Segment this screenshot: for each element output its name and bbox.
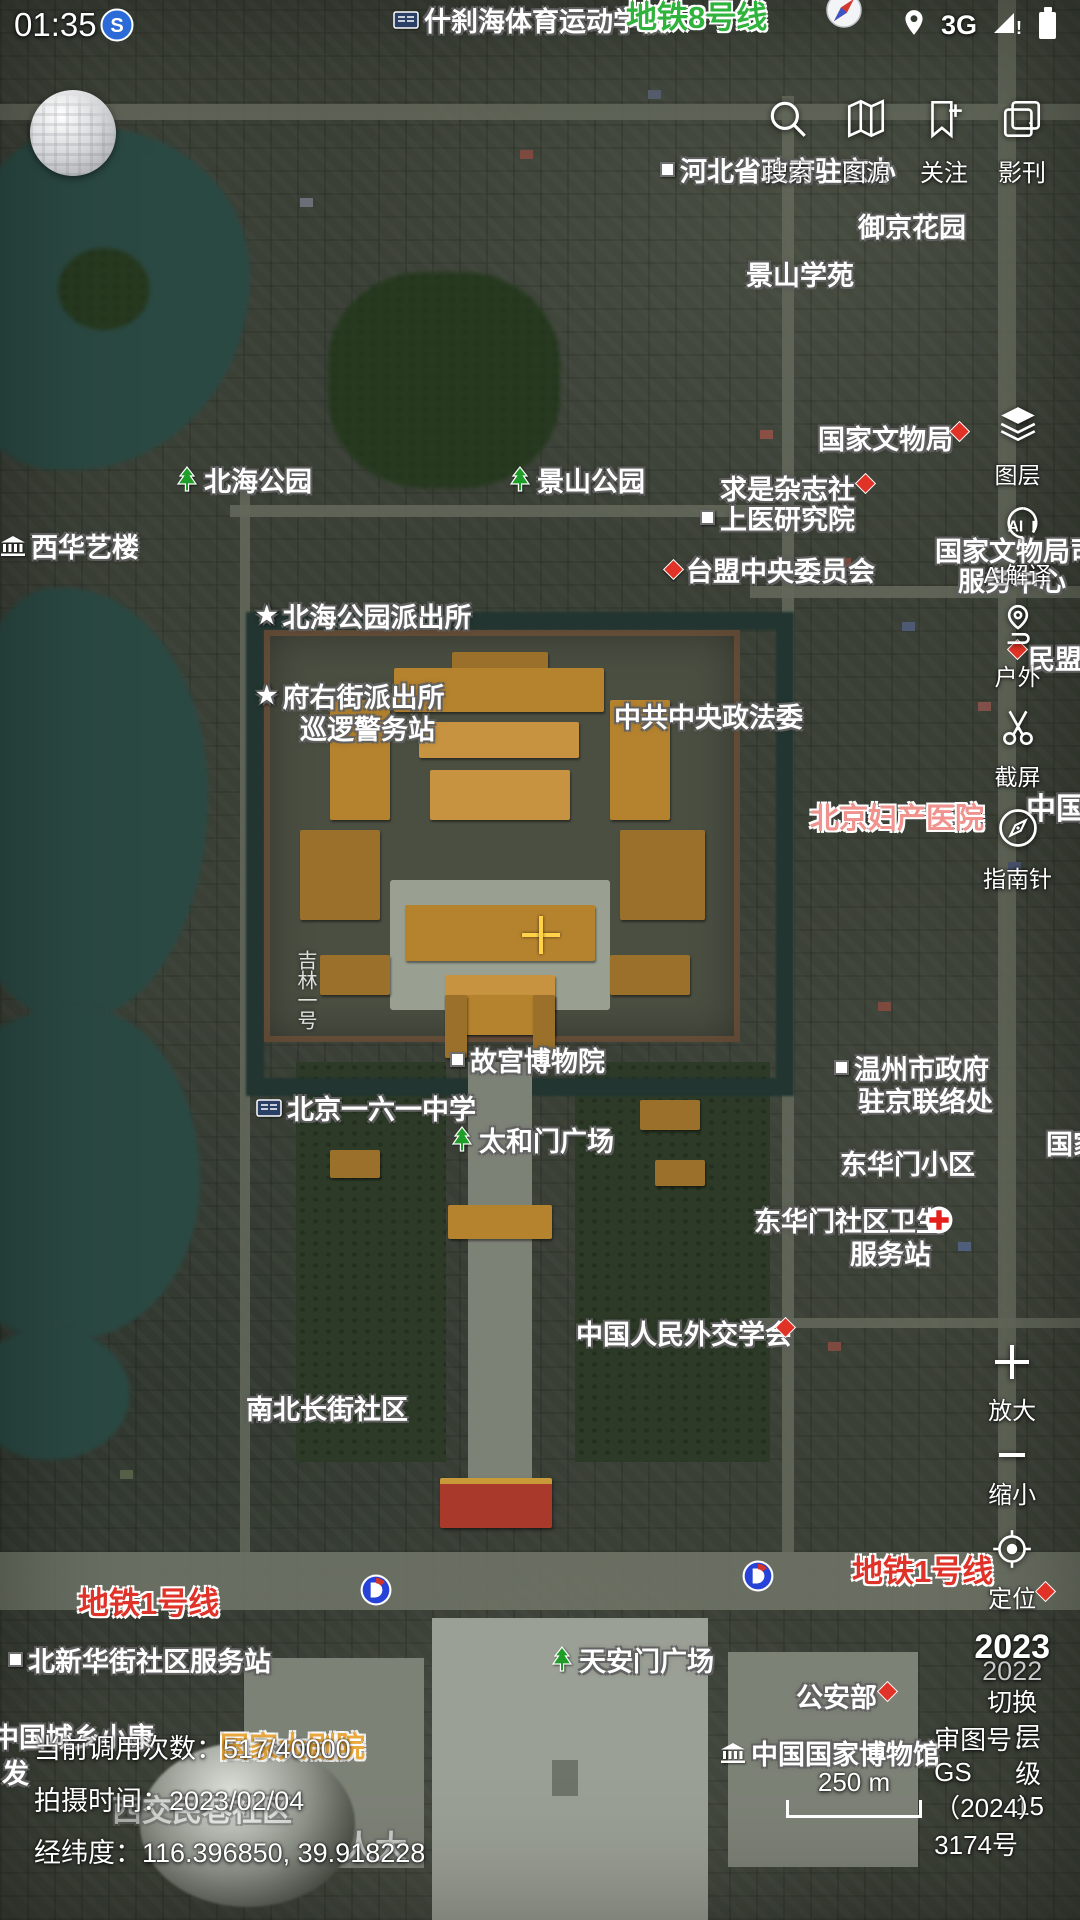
overlapping-frames-icon (999, 96, 1045, 147)
map-label: 吉林一号 (291, 950, 320, 1030)
map-canvas[interactable]: 什刹海体育运动学校地铁8号线河北省政府驻京办御京花园景山学苑国家文物局北海公园景… (0, 0, 1080, 1920)
layers-icon (994, 404, 1042, 453)
locate-button[interactable]: 定位 (988, 1526, 1036, 1614)
map-label[interactable]: 驻京联络处 (858, 1080, 993, 1119)
map-label[interactable]: 上医研究院 (700, 498, 855, 537)
museum-icon (720, 1742, 746, 1764)
battery-icon (1039, 12, 1056, 39)
map-label[interactable]: 北京妇产医院 (810, 795, 984, 837)
poi-dot-icon (450, 1052, 465, 1067)
imagery-year-switcher[interactable]: 2023 2022 切换 (974, 1630, 1050, 1716)
map-label[interactable]: 北京一六一中学 (256, 1088, 476, 1127)
follow-button[interactable]: 关注 (912, 96, 976, 188)
tree-icon (508, 466, 532, 494)
minus-icon (990, 1442, 1034, 1473)
scissors-icon (995, 704, 1041, 755)
map-label: 地铁1号线 (78, 1578, 219, 1623)
map-label[interactable]: 中共中央政法委 (614, 696, 803, 735)
ai-head-icon: AI (993, 502, 1041, 553)
map-source-label: 图源 (842, 153, 890, 188)
map-label[interactable]: 景山学苑 (746, 254, 854, 293)
map-label[interactable]: 故宫博物院 (450, 1040, 605, 1079)
outdoor-button[interactable]: 户外 (994, 602, 1042, 692)
map-labels-layer: 什刹海体育运动学校地铁8号线河北省政府驻京办御京花园景山学苑国家文物局北海公园景… (0, 0, 1080, 1920)
police-star-icon: ★ (256, 604, 278, 628)
map-center-crosshair (522, 916, 560, 954)
pin-route-icon (994, 602, 1042, 655)
layers-button[interactable]: 图层 (994, 404, 1042, 490)
map-label[interactable]: 西华艺楼 (0, 526, 139, 565)
map-label[interactable]: 发 (2, 1752, 29, 1791)
scale-bar: 250 m (786, 1767, 922, 1818)
poi-marker-diamond (880, 1684, 895, 1704)
poi-marker-diamond (858, 476, 873, 496)
map-label[interactable]: 中国人民外交学会 (576, 1313, 792, 1352)
map-controls: 放大 缩小 定位 2023 2022 切换 (974, 1340, 1050, 1716)
status-bar: 01:35 3G ! (0, 0, 1080, 48)
scale-bar-line (786, 1800, 922, 1818)
poi-diamond-icon (663, 559, 684, 580)
ai-interpret-label: AI解译 (984, 556, 1052, 590)
hospital-cross-icon (925, 1206, 953, 1239)
svg-text:!: ! (1016, 18, 1022, 37)
year-previous: 2022 (982, 1658, 1042, 1685)
museum-icon (0, 535, 26, 557)
api-call-count: 当前调用次数：517/40000 (34, 1727, 425, 1766)
screenshot-button[interactable]: 截屏 (995, 704, 1041, 792)
follow-label: 关注 (920, 153, 968, 188)
layers-label: 图层 (995, 456, 1041, 490)
map-label[interactable]: 太和门广场 (450, 1120, 614, 1159)
map-source-button[interactable]: 图源 (834, 96, 898, 188)
imagery-button[interactable]: 影刊 (990, 96, 1054, 188)
map-label[interactable]: 东华门小区 (840, 1143, 975, 1182)
search-icon (765, 96, 811, 147)
poi-marker-diamond (952, 424, 967, 444)
search-label: 搜索 (764, 153, 812, 188)
map-label[interactable]: 北新华街社区服务站 (8, 1640, 271, 1679)
map-label: 地铁1号线 (852, 1546, 993, 1591)
poi-dot-icon (834, 1060, 849, 1075)
police-star-icon: ★ (256, 684, 278, 708)
map-label[interactable]: 服务站 (850, 1233, 931, 1272)
imagery-label: 影刊 (998, 153, 1046, 188)
svg-text:AI: AI (1008, 518, 1024, 535)
compass-icon (994, 804, 1042, 857)
map-label[interactable]: 北海公园 (175, 460, 312, 499)
school-icon (256, 1097, 282, 1119)
map-license-number: 审图号：GS（2024）3174号 (934, 1720, 1044, 1862)
map-label[interactable]: 景山公园 (508, 460, 645, 499)
zoom-out-button[interactable]: 缩小 (988, 1442, 1036, 1510)
signal-strength-icon: ! (991, 9, 1025, 42)
metro-logo-icon[interactable] (360, 1574, 392, 1611)
top-toolbar: 搜索 图源 关注 影刊 (756, 96, 1054, 188)
zoom-in-button[interactable]: 放大 (988, 1340, 1036, 1426)
folded-map-icon (843, 96, 889, 147)
screenshot-label: 截屏 (995, 758, 1041, 792)
year-switch-label: 切换 (987, 1691, 1037, 1716)
gps-pin-icon (901, 8, 927, 43)
capture-date: 拍摄时间：2023/02/04 (34, 1779, 425, 1818)
map-label[interactable]: ★北海公园派出所 (256, 596, 472, 635)
locate-label: 定位 (988, 1579, 1036, 1614)
plus-icon (990, 1340, 1034, 1389)
tree-icon (450, 1126, 474, 1154)
poi-dot-icon (660, 162, 675, 177)
tree-icon (175, 466, 199, 494)
map-label[interactable]: 台盟中央委员会 (666, 550, 875, 589)
compass-button[interactable]: 指南针 (983, 804, 1052, 894)
map-label[interactable]: 南北长街社区 (246, 1388, 408, 1427)
map-label[interactable]: 天安门广场 (550, 1640, 714, 1679)
poi-dot-icon (8, 1652, 23, 1667)
ai-interpret-button[interactable]: AI AI解译 (984, 502, 1052, 590)
poi-dot-icon (700, 510, 715, 525)
zoom-out-label: 缩小 (988, 1475, 1036, 1510)
right-toolbar: 图层 AI AI解译 户外 截屏 指南针 (983, 404, 1052, 894)
outdoor-label: 户外 (995, 658, 1041, 692)
map-label[interactable]: 国家 (1046, 1123, 1080, 1162)
poi-marker-diamond (778, 1320, 793, 1340)
coordinates-readout: 经纬度：116.396850, 39.918228 (34, 1831, 425, 1870)
bookmark-plus-icon (921, 96, 967, 147)
locate-target-icon (989, 1526, 1035, 1577)
network-type-label: 3G (941, 10, 977, 41)
imagery-info-panel: 当前调用次数：517/40000 拍摄时间：2023/02/04 经纬度：116… (34, 1727, 425, 1870)
map-label[interactable]: 巡逻警务站 (300, 708, 435, 747)
satellite-map-app: { "status_bar": { "time": "01:35", "netw… (0, 0, 1080, 1920)
clock: 01:35 (14, 6, 97, 44)
search-button[interactable]: 搜索 (756, 96, 820, 188)
map-label[interactable]: 御京花园 (858, 206, 966, 245)
tree-icon (550, 1646, 574, 1674)
3d-navigation-ball[interactable] (30, 90, 116, 176)
map-label[interactable]: 国家文物局 (818, 418, 953, 457)
metro-logo-icon[interactable] (742, 1560, 774, 1597)
scale-text: 250 m (818, 1767, 890, 1797)
compass-label: 指南针 (983, 860, 1052, 894)
map-label[interactable]: 公安部 (796, 1676, 877, 1715)
zoom-in-label: 放大 (988, 1391, 1036, 1426)
